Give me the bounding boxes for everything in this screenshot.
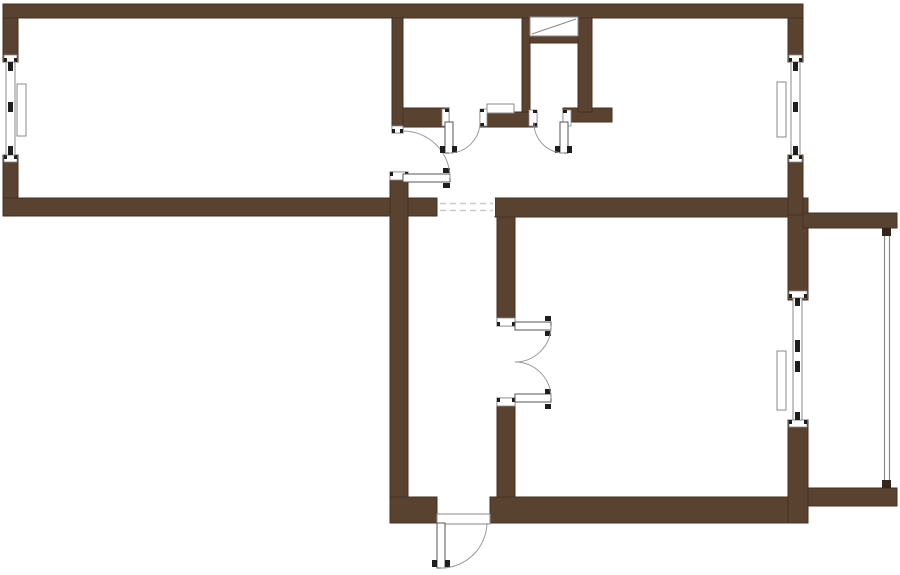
bath-jamb-right-tick: [480, 109, 484, 112]
corridor-west-wall: [390, 172, 408, 523]
window-left-mullion: [8, 62, 13, 71]
entrance-door-tick: [432, 560, 437, 567]
plan-background: [0, 0, 900, 575]
ddoor-jamb-bottom-tick: [497, 398, 500, 402]
balcony-door-window-frame: [793, 298, 802, 420]
balcony-door-window-mullion: [795, 412, 800, 420]
floor-plan-page: [0, 0, 900, 575]
double-door-top-leaf-tick: [545, 316, 551, 321]
top-wall: [3, 4, 803, 18]
window-right-mullion: [793, 146, 798, 155]
wall-shelf: [487, 104, 514, 113]
entrance-door-leaf: [437, 523, 445, 568]
win2-jamb-top-tick: [789, 58, 792, 62]
vent-shelf-wall: [530, 36, 578, 43]
bathroom-door-tick: [440, 146, 445, 153]
wc-door-tick: [567, 146, 572, 153]
door1-jamb-top-tick: [392, 129, 395, 133]
wc-east-wall: [578, 18, 592, 112]
bathroom-door-leaf: [445, 122, 453, 153]
window-left-mullion: [8, 146, 13, 155]
living-room-door-tick: [443, 183, 450, 188]
double-door-bottom-leaf-leaf: [515, 394, 551, 402]
ddoor-jamb-top-tick: [497, 322, 500, 326]
win2-jamb-bottom-tick: [789, 155, 792, 159]
window-right-mullion: [793, 62, 798, 71]
win2-jamb-bottom-tick: [799, 155, 802, 159]
room-west-upper: [497, 217, 515, 326]
balcony-top-bar: [803, 213, 897, 228]
balcony-railing-post: [882, 228, 891, 236]
win2-jamb-top-tick: [799, 58, 802, 62]
window-right-mullion: [793, 102, 798, 112]
win1-jamb-bottom-tick: [14, 155, 17, 159]
bath-jamb-left-tick: [445, 109, 449, 112]
window-left-mullion: [8, 102, 13, 112]
bath-jamb-right-tick: [480, 123, 484, 126]
hall-open-passage: [438, 198, 495, 216]
window-right-sill: [777, 82, 786, 137]
win1-jamb-top-tick: [4, 58, 7, 62]
balcony-railing-post: [882, 480, 891, 488]
win1-jamb-bottom-tick: [4, 155, 7, 159]
wc-jamb-right-tick: [563, 110, 567, 113]
balcony-bottom-bar: [808, 488, 897, 506]
mid-wall-left: [3, 198, 437, 216]
living-partition: [392, 18, 403, 133]
door1-jamb-bottom-tick: [390, 172, 393, 176]
living-room-door-leaf: [403, 174, 450, 182]
right-wall-lower: [788, 420, 808, 523]
balcony-door-window-mullion: [795, 340, 800, 352]
win3-jamb-top-tick: [789, 294, 792, 298]
win3-jamb-bottom-tick: [804, 420, 807, 424]
double-door-top-leaf-leaf: [515, 322, 551, 330]
balcony-door-window-mullion: [795, 361, 800, 372]
double-door-bottom-leaf-tick: [545, 404, 551, 409]
bath-wc-partition: [522, 18, 530, 112]
bottom-wall: [490, 497, 808, 523]
win3-jamb-bottom-tick: [789, 420, 792, 424]
win1-jamb-top-tick: [14, 58, 17, 62]
floor-plan-drawing: [0, 0, 900, 575]
wc-jamb-left-tick: [533, 110, 537, 113]
wc-door-leaf: [560, 122, 568, 153]
right-wall-mid-a: [788, 155, 803, 217]
balcony-door-window-mullion: [795, 298, 800, 306]
door1-jamb-top-tick: [400, 129, 403, 133]
entrance-door-tick: [445, 560, 450, 567]
balcony-door-window-sill: [777, 351, 786, 410]
mid-wall-right: [495, 198, 808, 217]
bath-south-mid: [480, 112, 537, 127]
entry-left-block: [390, 497, 437, 523]
win3-jamb-top-tick: [804, 294, 807, 298]
window-left-sill: [17, 84, 26, 136]
